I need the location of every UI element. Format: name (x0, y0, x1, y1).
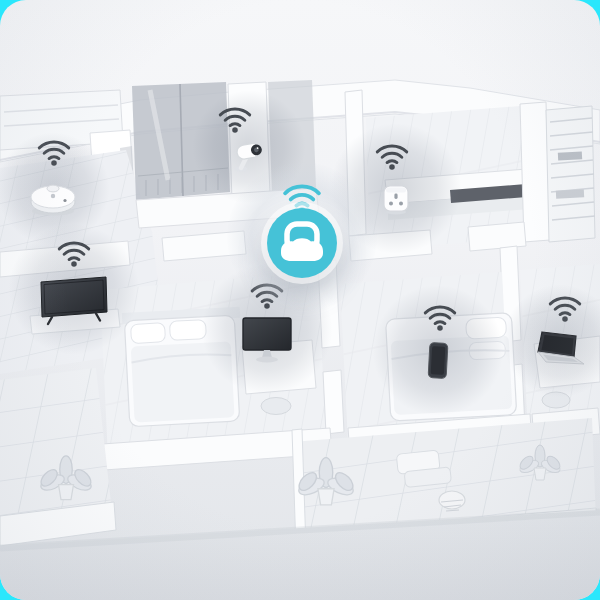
terrace-left (0, 368, 116, 546)
smart-plug-icon (381, 183, 411, 215)
router-badge (267, 208, 337, 278)
robot-vacuum-icon (27, 179, 79, 217)
smartphone-icon (426, 341, 450, 381)
laptop-icon (534, 329, 586, 371)
wifi-icon (374, 142, 410, 170)
router-icon (267, 208, 337, 278)
television-icon (38, 274, 110, 326)
wifi-icon (56, 239, 92, 267)
security-camera-icon (230, 139, 268, 173)
wifi-icon (36, 138, 72, 166)
desktop-monitor-icon (240, 316, 294, 364)
wifi-icon (547, 294, 583, 322)
wifi-icon (217, 105, 253, 133)
wifi-icon (422, 303, 458, 331)
illustration-card (0, 0, 600, 600)
